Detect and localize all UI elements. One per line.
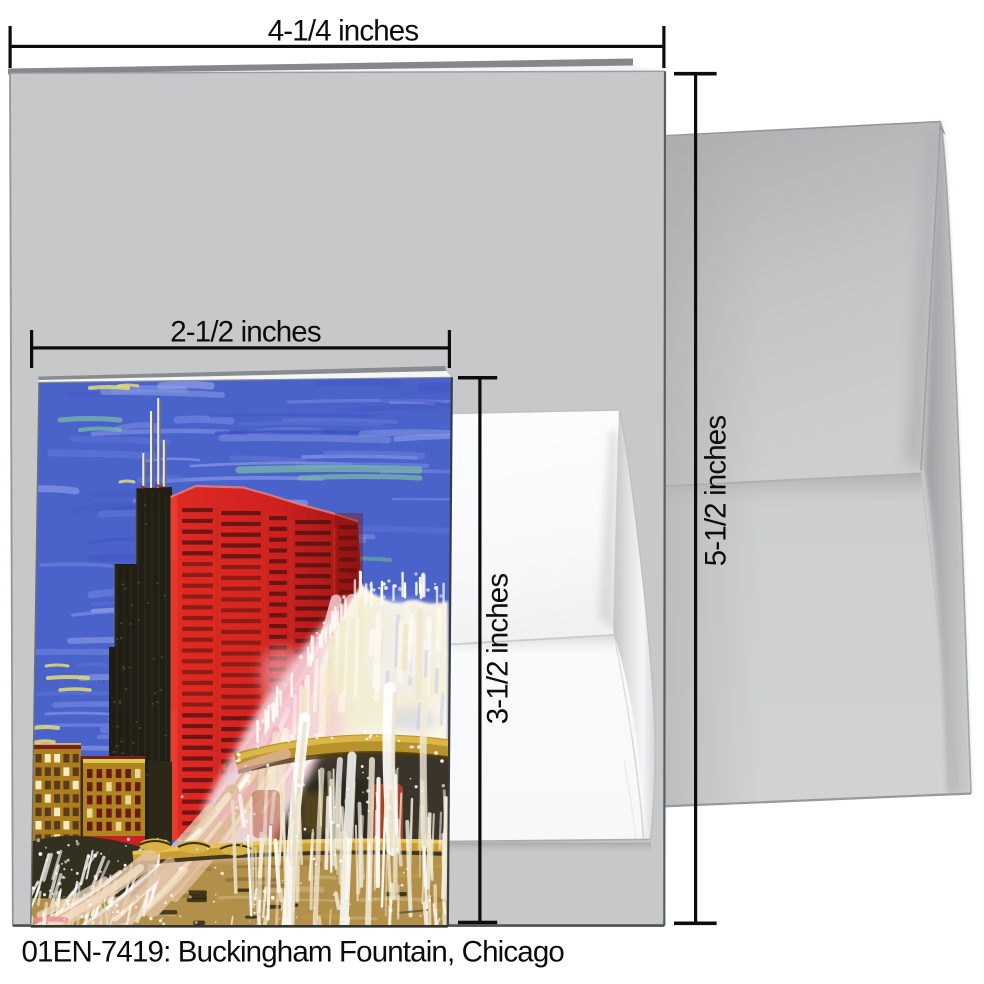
svg-text:3-1/2 inches: 3-1/2 inches bbox=[482, 574, 515, 725]
svg-text:5-1/2 inches: 5-1/2 inches bbox=[700, 416, 733, 567]
svg-text:4-1/4 inches: 4-1/4 inches bbox=[268, 15, 419, 48]
svg-text:2-1/2 inches: 2-1/2 inches bbox=[170, 316, 321, 349]
svg-text:01EN-7419: Buckingham Fountain: 01EN-7419: Buckingham Fountain, Chicago bbox=[22, 936, 565, 969]
